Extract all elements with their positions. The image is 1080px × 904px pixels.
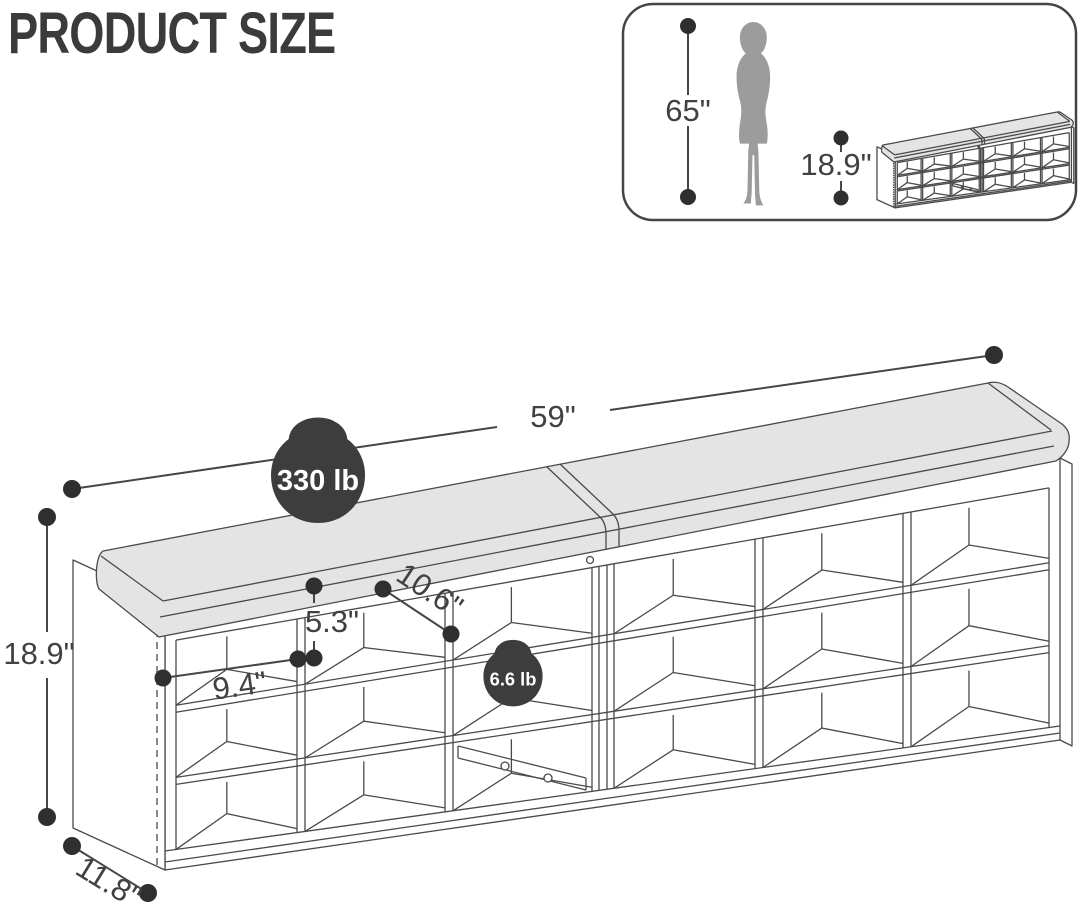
height-dimension: 18.9" [3, 508, 74, 826]
reference-box: 65" 18.9" [623, 4, 1076, 220]
diagram-canvas: 65" 18.9" 59" [0, 0, 1080, 904]
person-height-label: 65" [665, 93, 711, 128]
depth-label: 11.8" [70, 849, 147, 904]
cubby-height-label: 5.3" [305, 604, 359, 639]
mini-bench-height-label: 18.9" [800, 147, 871, 182]
height-label: 18.9" [3, 636, 74, 671]
kettlebell-max-load-icon: 330 lb [271, 424, 365, 523]
max-load-label: 330 lb [277, 465, 359, 497]
product-size-page: PRODUCT SIZE 65" 18.9" [0, 0, 1080, 904]
cubby-width-label: 9.4" [210, 665, 268, 707]
bench-drawing [73, 382, 1072, 870]
shelf-load-label: 6.6 lb [490, 669, 537, 690]
page-title: PRODUCT SIZE [8, 0, 335, 67]
width-label: 59" [530, 399, 576, 434]
